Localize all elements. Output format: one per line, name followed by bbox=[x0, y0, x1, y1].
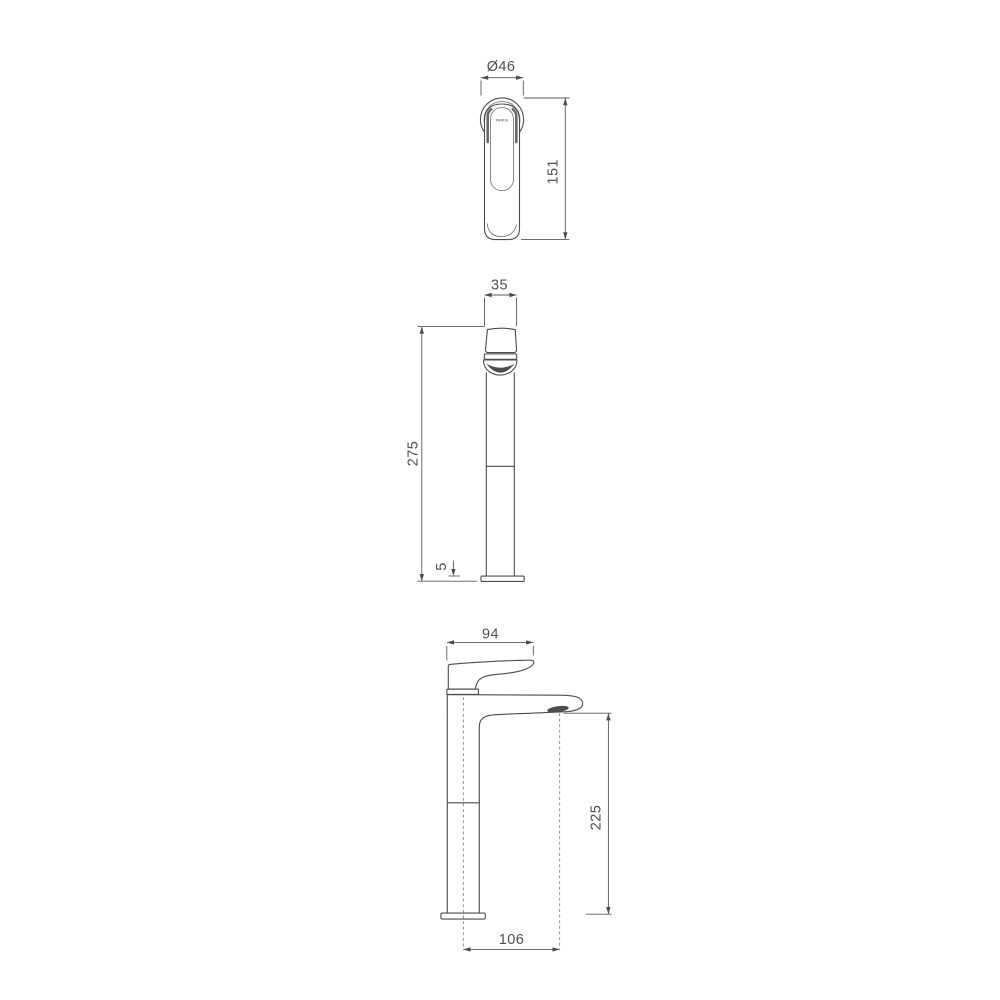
base-flange-front bbox=[481, 576, 524, 581]
handle-knob-front bbox=[485, 328, 516, 352]
dim-front-width: 35 bbox=[485, 278, 517, 327]
dim-label-94: 94 bbox=[482, 627, 499, 643]
collar-front bbox=[484, 354, 516, 359]
front-view: 35 275 5 bbox=[406, 278, 525, 582]
handle-outline bbox=[485, 104, 520, 240]
top-view: PARISI Ø46 151 bbox=[480, 59, 569, 240]
dim-top-diameter: Ø46 bbox=[481, 59, 523, 96]
dim-side-reach: 106 bbox=[463, 932, 559, 952]
collar-side bbox=[447, 689, 479, 694]
handle-lever-side bbox=[448, 660, 534, 689]
side-view: 94 225 106 bbox=[441, 627, 612, 952]
dim-label-35: 35 bbox=[491, 278, 508, 294]
dim-side-height: 225 bbox=[564, 713, 612, 914]
dim-label-151: 151 bbox=[546, 159, 562, 184]
technical-drawing-page: PARISI Ø46 151 35 bbox=[0, 0, 1000, 1000]
brand-logo-text: PARISI bbox=[496, 118, 509, 122]
dim-label-diameter: Ø46 bbox=[487, 59, 516, 75]
spout-head-front bbox=[483, 360, 517, 375]
dim-label-275: 275 bbox=[406, 441, 422, 466]
dim-label-5: 5 bbox=[434, 562, 450, 570]
dim-top-height: 151 bbox=[521, 98, 569, 239]
spout-body-side bbox=[447, 695, 582, 914]
dim-front-base: 5 bbox=[434, 561, 460, 577]
basin-mixer-drawing: PARISI Ø46 151 35 bbox=[0, 0, 1000, 1000]
dim-label-225: 225 bbox=[589, 805, 605, 830]
dim-side-width: 94 bbox=[447, 627, 534, 661]
dim-label-106: 106 bbox=[499, 932, 524, 948]
dim-front-height: 275 bbox=[406, 327, 485, 582]
